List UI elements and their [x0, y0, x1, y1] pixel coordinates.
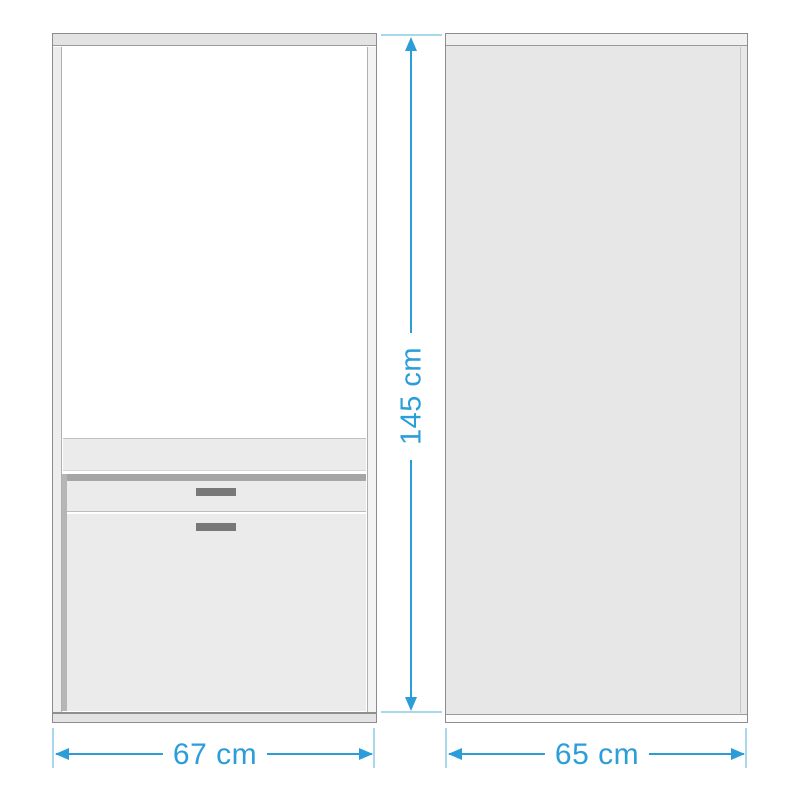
- front-left-side-panel: [53, 47, 62, 712]
- side-bottom-edge: [446, 714, 747, 722]
- front-drawer: [59, 481, 366, 512]
- cabinet-front-view: [52, 33, 377, 723]
- cabinet-side-view: [445, 33, 748, 723]
- side-depth-extension-left: [445, 728, 447, 768]
- front-width-extension-right: [373, 728, 375, 768]
- side-depth-dimension-label: 65 cm: [545, 738, 649, 772]
- front-width-dimension-label: 67 cm: [163, 738, 267, 772]
- arrowhead-right-icon: [359, 748, 373, 760]
- arrowhead-down-icon: [405, 697, 417, 711]
- height-dimension-line-lower: [410, 460, 412, 703]
- front-recess-strip: [59, 474, 366, 481]
- side-top-edge: [446, 34, 747, 46]
- front-shelf-panel: [63, 438, 366, 471]
- height-tick-bottom: [381, 711, 442, 713]
- arrowhead-left-icon: [448, 748, 462, 760]
- front-top-panel: [53, 34, 376, 46]
- front-base-panel: [53, 712, 376, 722]
- side-depth-extension-right: [745, 728, 747, 768]
- door-handle: [196, 523, 236, 531]
- arrowhead-up-icon: [405, 37, 417, 51]
- front-width-extension-left: [52, 728, 54, 768]
- side-rear-edge-line: [740, 47, 741, 713]
- front-right-side-panel: [367, 47, 376, 712]
- arrowhead-right-icon: [731, 748, 745, 760]
- dimension-drawing-canvas: 145 cm 67 cm 65 cm: [0, 0, 800, 800]
- height-dimension-line-upper: [410, 44, 412, 333]
- height-dimension-label: 145 cm: [396, 339, 429, 453]
- drawer-handle: [196, 488, 236, 496]
- front-door: [59, 514, 366, 711]
- height-tick-top: [381, 34, 442, 36]
- front-open-compartment: [63, 47, 366, 438]
- arrowhead-left-icon: [55, 748, 69, 760]
